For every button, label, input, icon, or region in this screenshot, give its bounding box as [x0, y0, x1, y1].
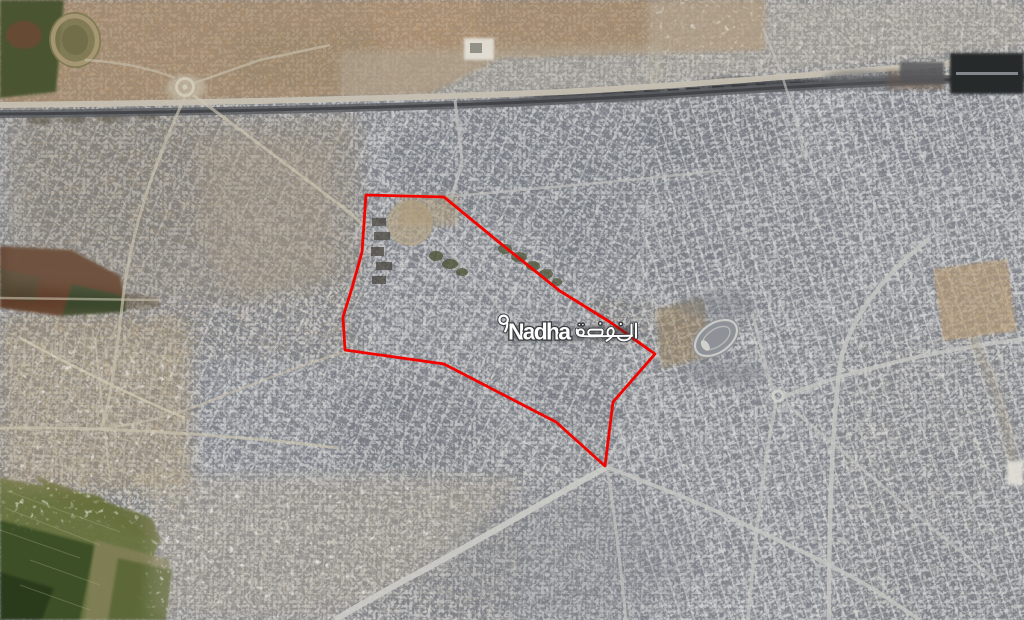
svg-text:Nadha: Nadha [508, 319, 571, 345]
